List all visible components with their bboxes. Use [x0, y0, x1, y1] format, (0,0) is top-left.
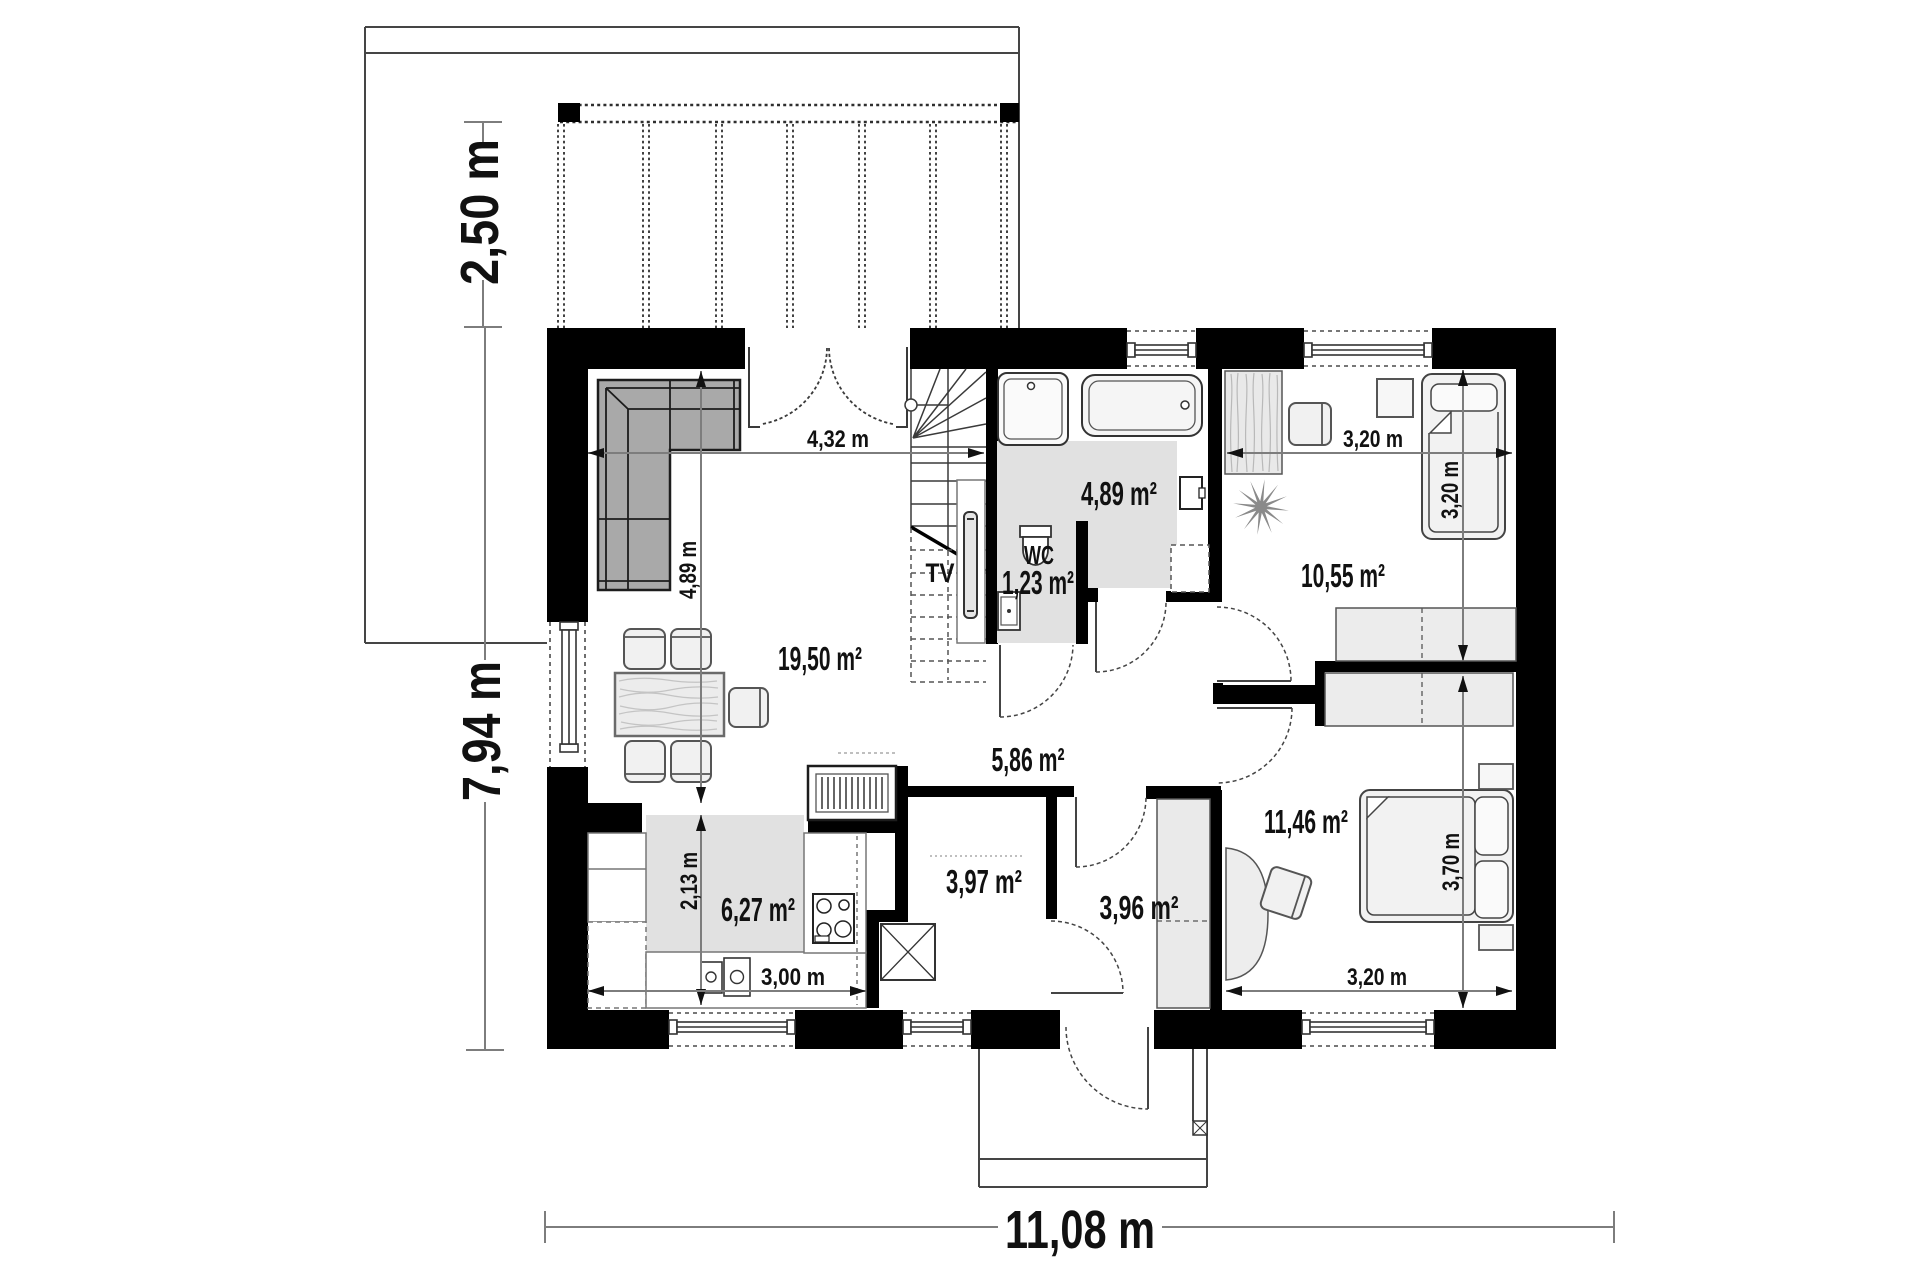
svg-text:4,89 m²: 4,89 m²: [1081, 475, 1157, 512]
svg-text:5,86 m²: 5,86 m²: [992, 741, 1065, 778]
svg-text:7,94 m: 7,94 m: [452, 661, 512, 801]
svg-text:2,13 m: 2,13 m: [676, 852, 703, 910]
svg-text:3,96 m²: 3,96 m²: [1100, 889, 1179, 926]
svg-text:2,50 m: 2,50 m: [450, 139, 510, 285]
svg-text:4,32 m: 4,32 m: [807, 426, 869, 453]
svg-text:4,89 m: 4,89 m: [675, 541, 702, 599]
svg-text:10,55 m²: 10,55 m²: [1301, 557, 1385, 594]
svg-text:3,20 m: 3,20 m: [1347, 964, 1407, 991]
svg-text:3,70 m: 3,70 m: [1438, 833, 1465, 891]
svg-text:11,08 m: 11,08 m: [1005, 1200, 1155, 1260]
svg-text:1,23 m²: 1,23 m²: [1002, 564, 1074, 601]
svg-text:3,97 m²: 3,97 m²: [946, 863, 1022, 900]
svg-text:19,50 m²: 19,50 m²: [778, 640, 862, 677]
svg-text:6,27 m²: 6,27 m²: [721, 891, 795, 928]
svg-text:11,46 m²: 11,46 m²: [1264, 803, 1348, 840]
svg-text:3,00 m: 3,00 m: [761, 964, 825, 991]
svg-text:3,20 m: 3,20 m: [1437, 461, 1464, 519]
svg-text:3,20 m: 3,20 m: [1343, 426, 1403, 453]
svg-text:TV: TV: [926, 558, 955, 588]
